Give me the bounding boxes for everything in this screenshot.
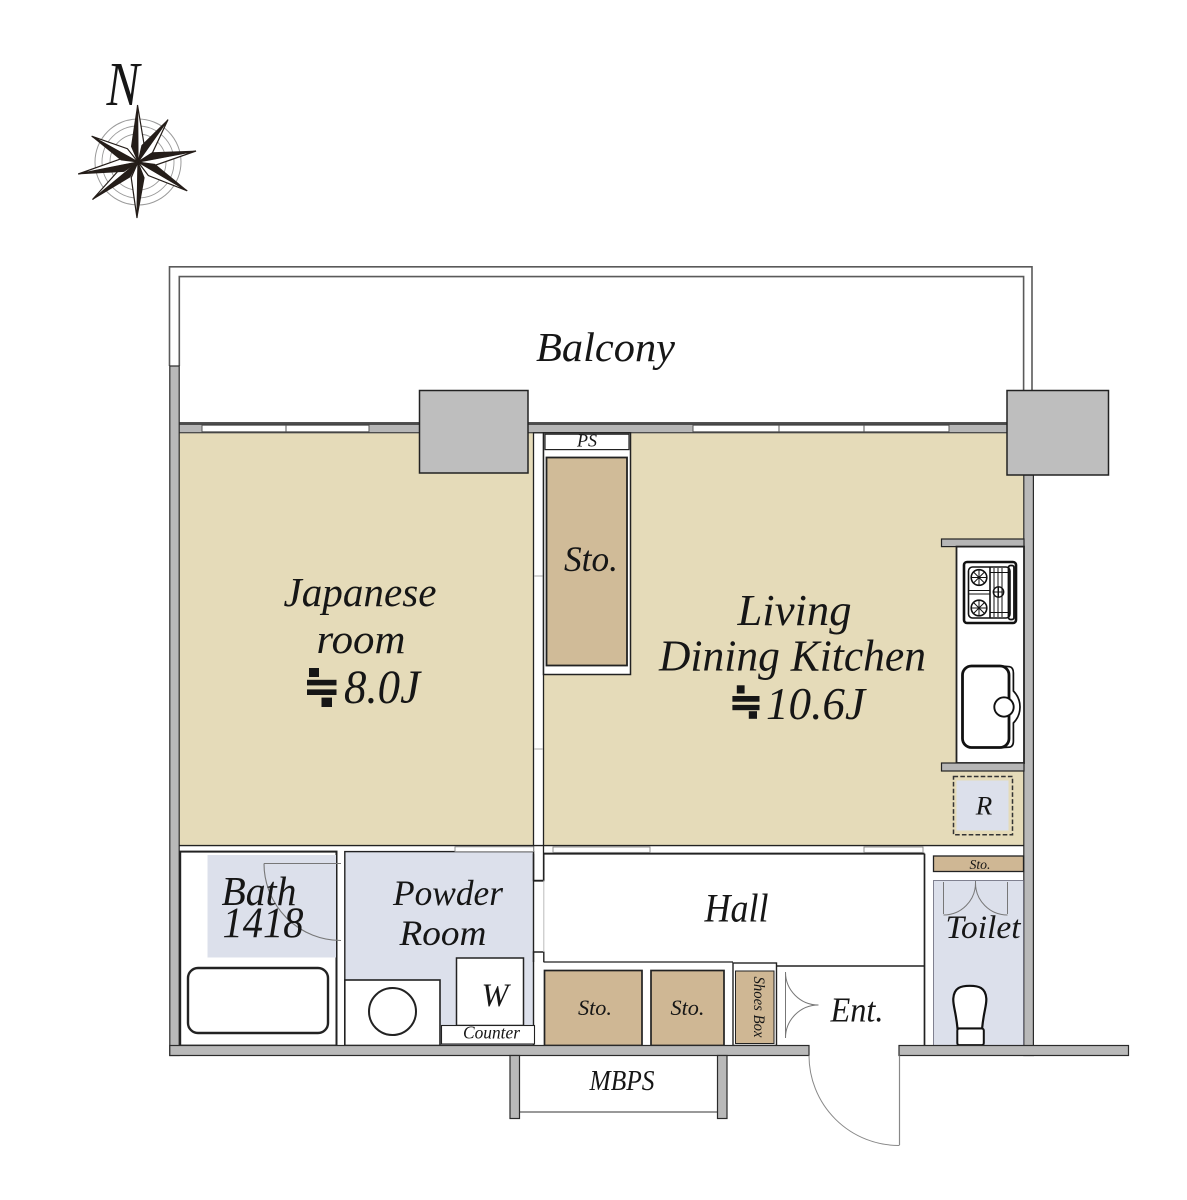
svg-text:PS: PS: [576, 431, 597, 451]
svg-text:Dining Kitchen: Dining Kitchen: [658, 632, 926, 681]
svg-text:Powder: Powder: [392, 873, 504, 913]
svg-text:W: W: [482, 978, 511, 1014]
svg-text:10.6J: 10.6J: [766, 679, 867, 729]
svg-text:Toilet: Toilet: [946, 910, 1022, 946]
svg-text:Sto.: Sto.: [578, 995, 612, 1020]
svg-text:Ent.: Ent.: [830, 991, 884, 1030]
svg-text:1418: 1418: [223, 900, 304, 947]
svg-text:Hall: Hall: [704, 886, 769, 931]
svg-text:Sto.: Sto.: [970, 857, 991, 872]
svg-text:room: room: [317, 616, 406, 662]
svg-text:N: N: [106, 51, 143, 119]
svg-text:Living: Living: [736, 586, 851, 635]
svg-text:Sto.: Sto.: [671, 995, 705, 1020]
svg-text:Sto.: Sto.: [564, 539, 618, 579]
svg-text:Japanese: Japanese: [284, 569, 437, 615]
svg-text:Balcony: Balcony: [536, 324, 676, 370]
svg-text:R: R: [975, 792, 993, 821]
svg-text:Counter: Counter: [463, 1023, 521, 1043]
svg-text:MBPS: MBPS: [589, 1066, 655, 1097]
svg-text:Room: Room: [398, 913, 486, 953]
svg-text:8.0J: 8.0J: [344, 661, 423, 714]
svg-text:Shoes Box: Shoes Box: [750, 977, 767, 1038]
